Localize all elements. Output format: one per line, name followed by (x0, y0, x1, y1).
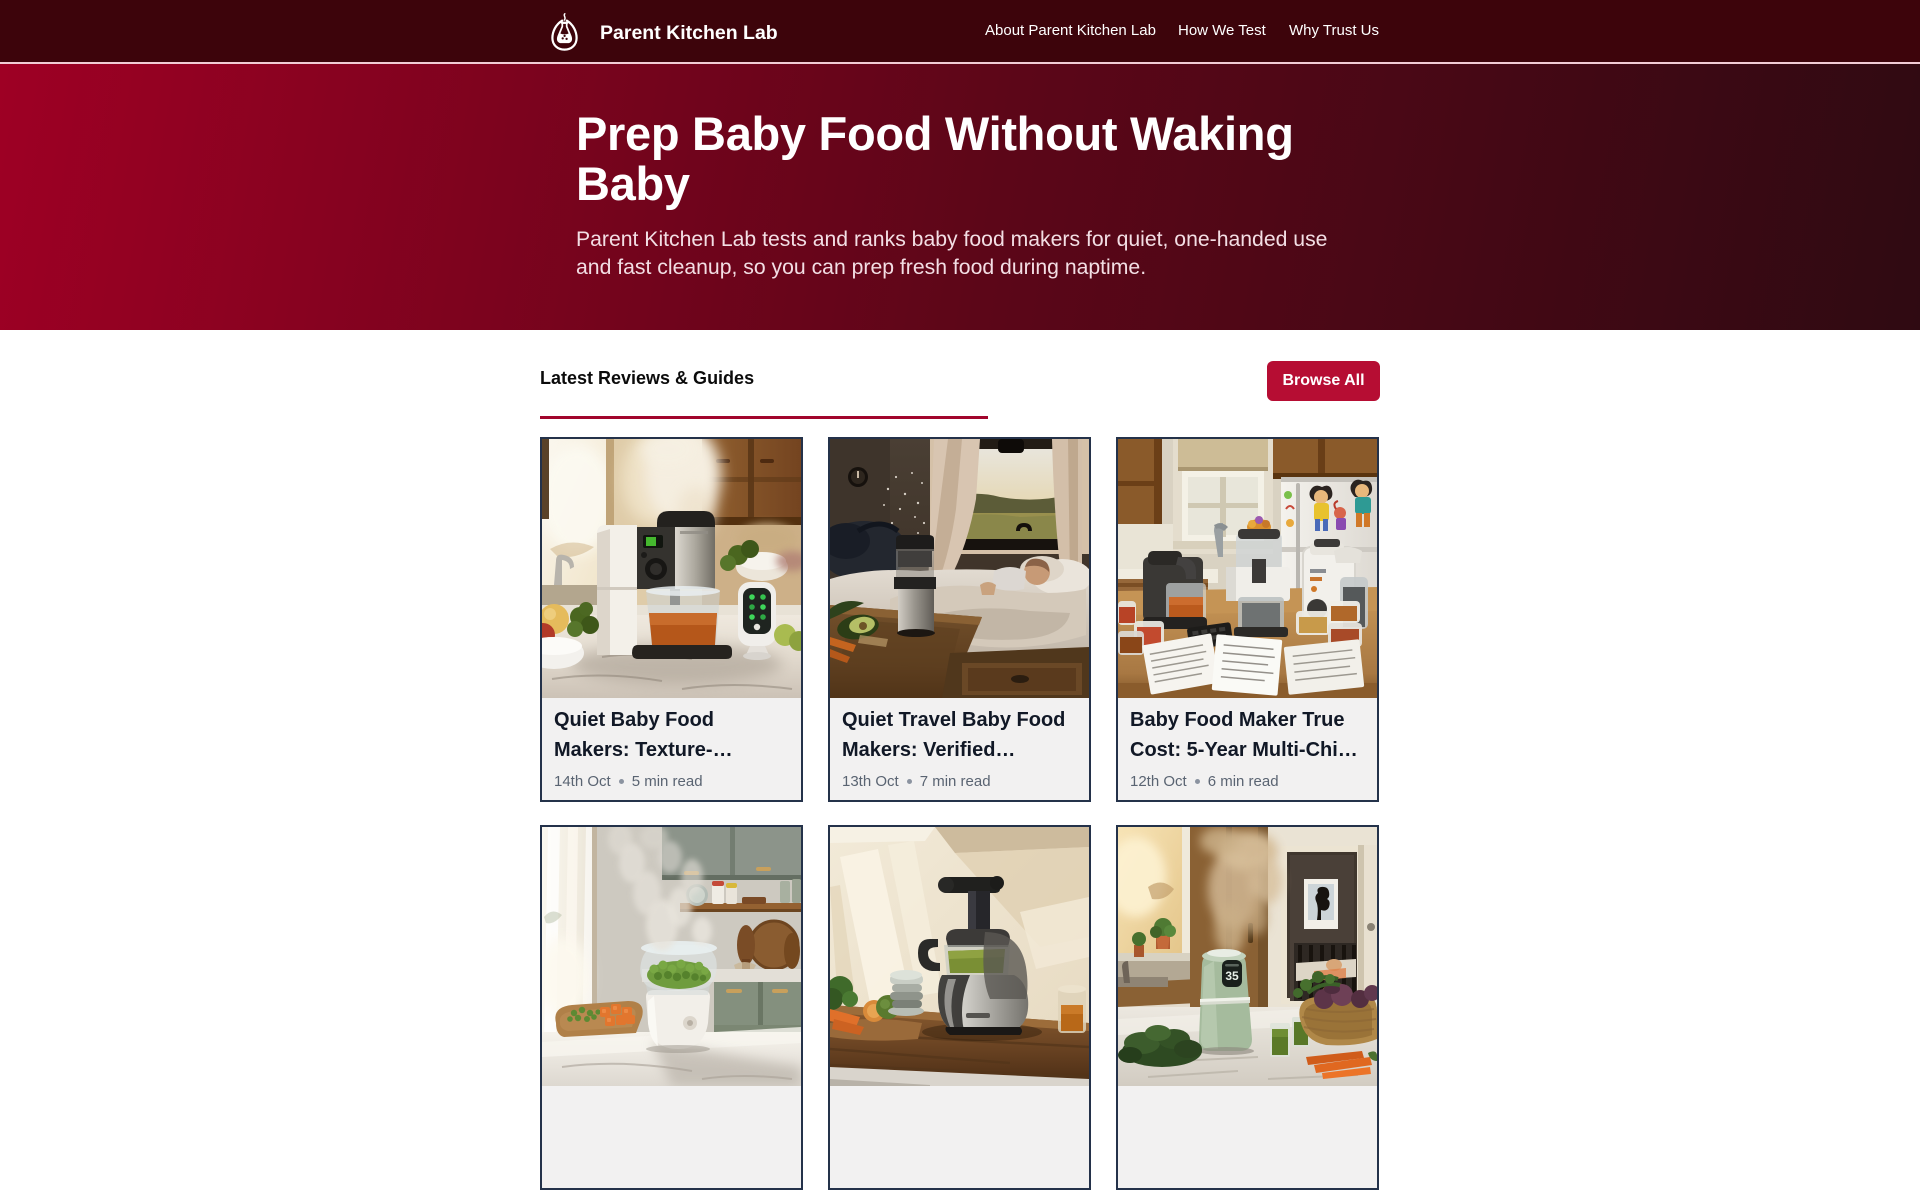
svg-text:35: 35 (1225, 969, 1239, 983)
